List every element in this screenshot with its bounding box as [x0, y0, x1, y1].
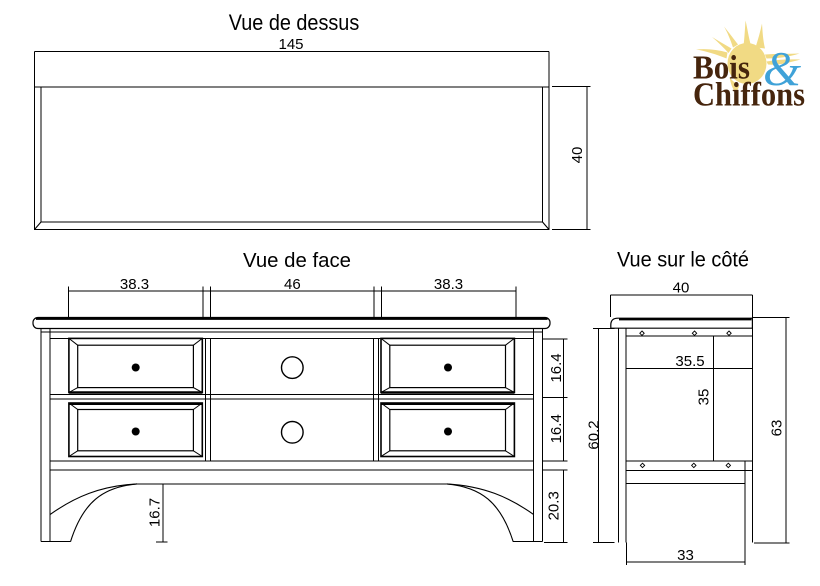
svg-text:40: 40 [673, 280, 690, 297]
svg-text:16.4: 16.4 [548, 414, 565, 443]
svg-text:35.5: 35.5 [675, 353, 704, 370]
svg-text:38.3: 38.3 [120, 276, 149, 293]
svg-text:Vue de face: Vue de face [243, 250, 351, 272]
svg-text:20.3: 20.3 [546, 491, 563, 520]
svg-text:38.3: 38.3 [434, 276, 463, 293]
svg-text:16.4: 16.4 [548, 353, 565, 382]
svg-text:145: 145 [278, 36, 303, 53]
svg-text:Chiffons: Chiffons [693, 77, 805, 114]
svg-text:35: 35 [696, 389, 713, 406]
svg-text:63: 63 [769, 420, 786, 437]
svg-text:60.2: 60.2 [585, 420, 602, 449]
svg-text:46: 46 [284, 276, 301, 293]
svg-text:Vue de dessus: Vue de dessus [229, 10, 360, 35]
svg-text:40: 40 [569, 147, 586, 164]
svg-text:Vue sur le côté: Vue sur le côté [617, 249, 749, 272]
svg-text:16.7: 16.7 [146, 498, 163, 527]
